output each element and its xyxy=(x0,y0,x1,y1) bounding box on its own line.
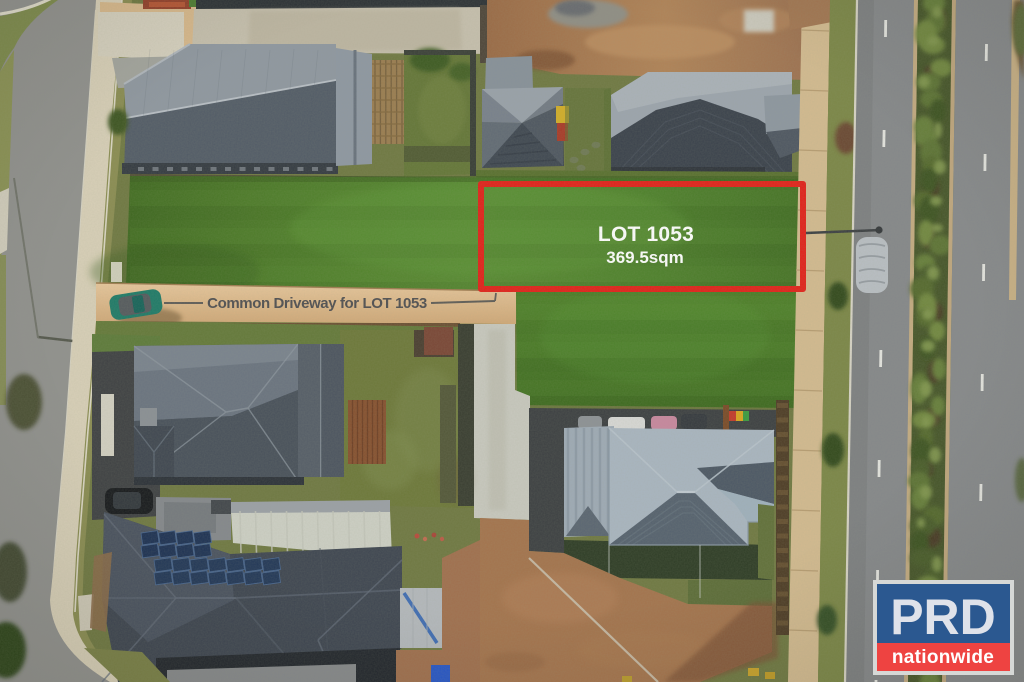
svg-text:PRD: PRD xyxy=(890,589,996,645)
svg-text:nationwide: nationwide xyxy=(892,647,994,668)
